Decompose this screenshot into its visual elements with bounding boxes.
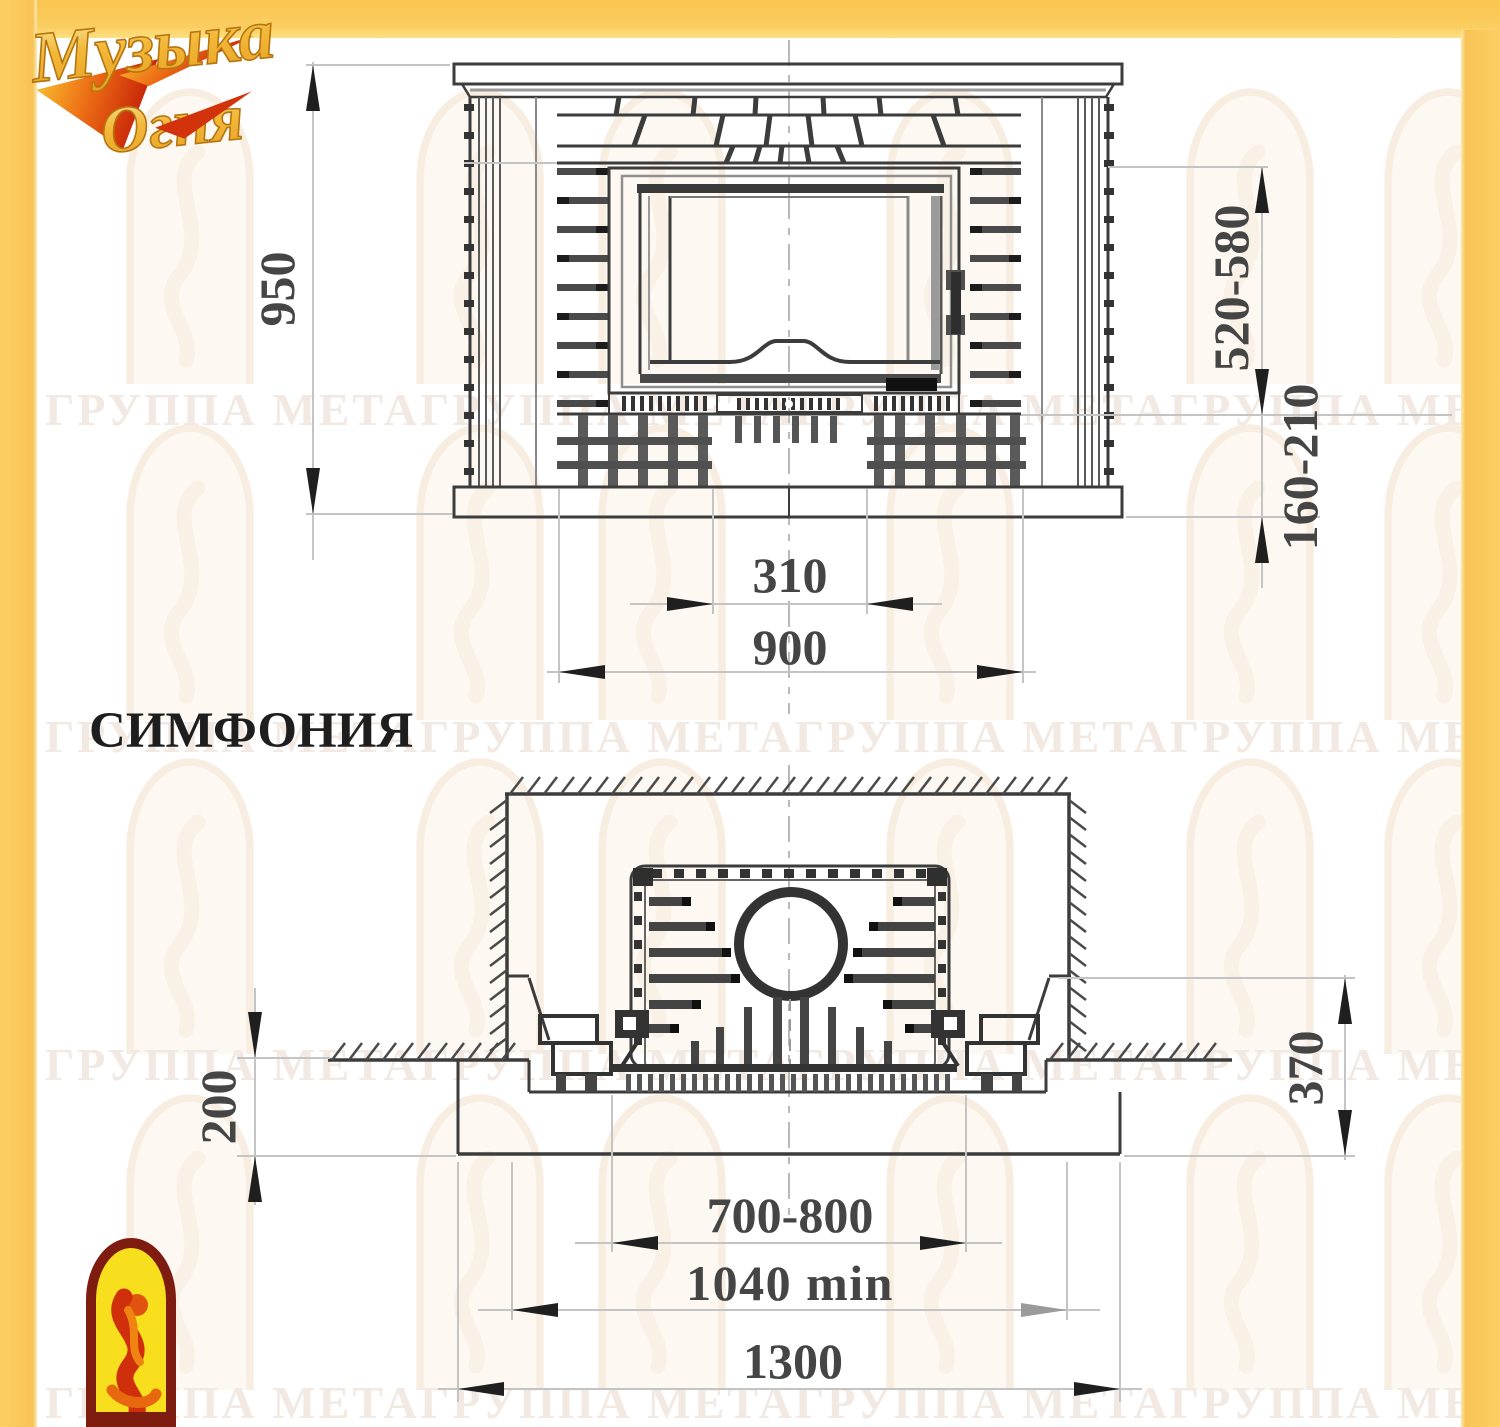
svg-text:370: 370 [1277, 1031, 1333, 1106]
svg-text:160-210: 160-210 [1272, 384, 1328, 551]
svg-text:200: 200 [190, 1070, 246, 1145]
svg-text:310: 310 [753, 547, 828, 603]
svg-text:1300: 1300 [743, 1333, 843, 1389]
svg-text:1040 min: 1040 min [686, 1255, 894, 1311]
svg-text:700-800: 700-800 [707, 1187, 874, 1243]
svg-text:900: 900 [753, 619, 828, 675]
svg-text:СИМФОНИЯ: СИМФОНИЯ [89, 703, 413, 759]
svg-text:950: 950 [249, 252, 305, 327]
svg-text:520-580: 520-580 [1203, 205, 1259, 372]
